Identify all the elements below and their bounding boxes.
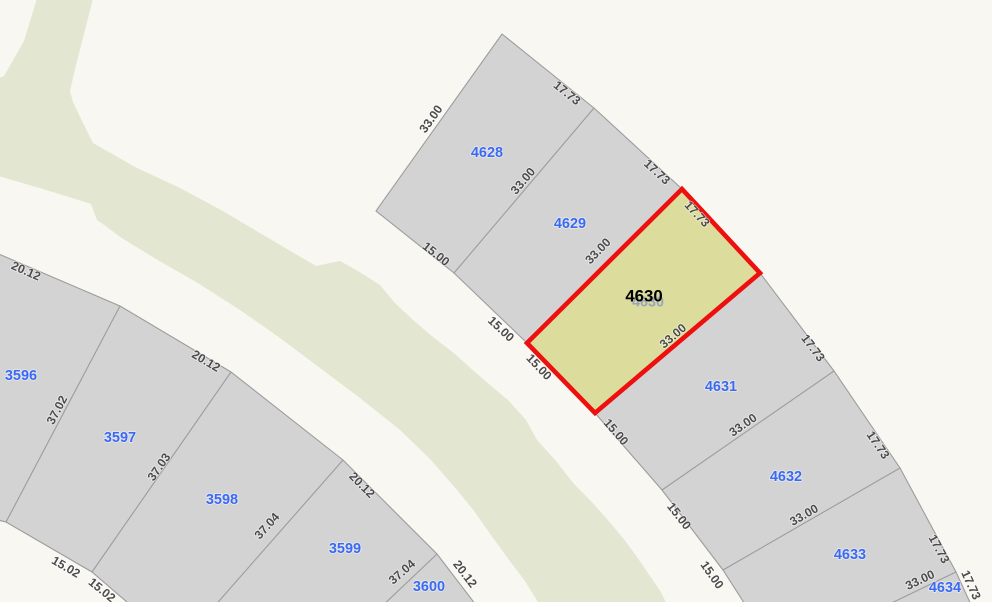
svg-text:3597: 3597 [104,430,136,446]
svg-text:4629: 4629 [554,216,586,232]
svg-text:4631: 4631 [705,379,737,395]
svg-text:3599: 3599 [329,541,361,557]
svg-text:4633: 4633 [834,547,866,563]
svg-text:4632: 4632 [770,469,802,485]
svg-text:4628: 4628 [471,145,503,161]
svg-text:3598: 3598 [206,492,238,508]
svg-text:3596: 3596 [5,368,37,384]
svg-text:3600: 3600 [413,579,445,595]
svg-text:4630: 4630 [625,287,662,306]
svg-text:4634: 4634 [929,580,961,596]
